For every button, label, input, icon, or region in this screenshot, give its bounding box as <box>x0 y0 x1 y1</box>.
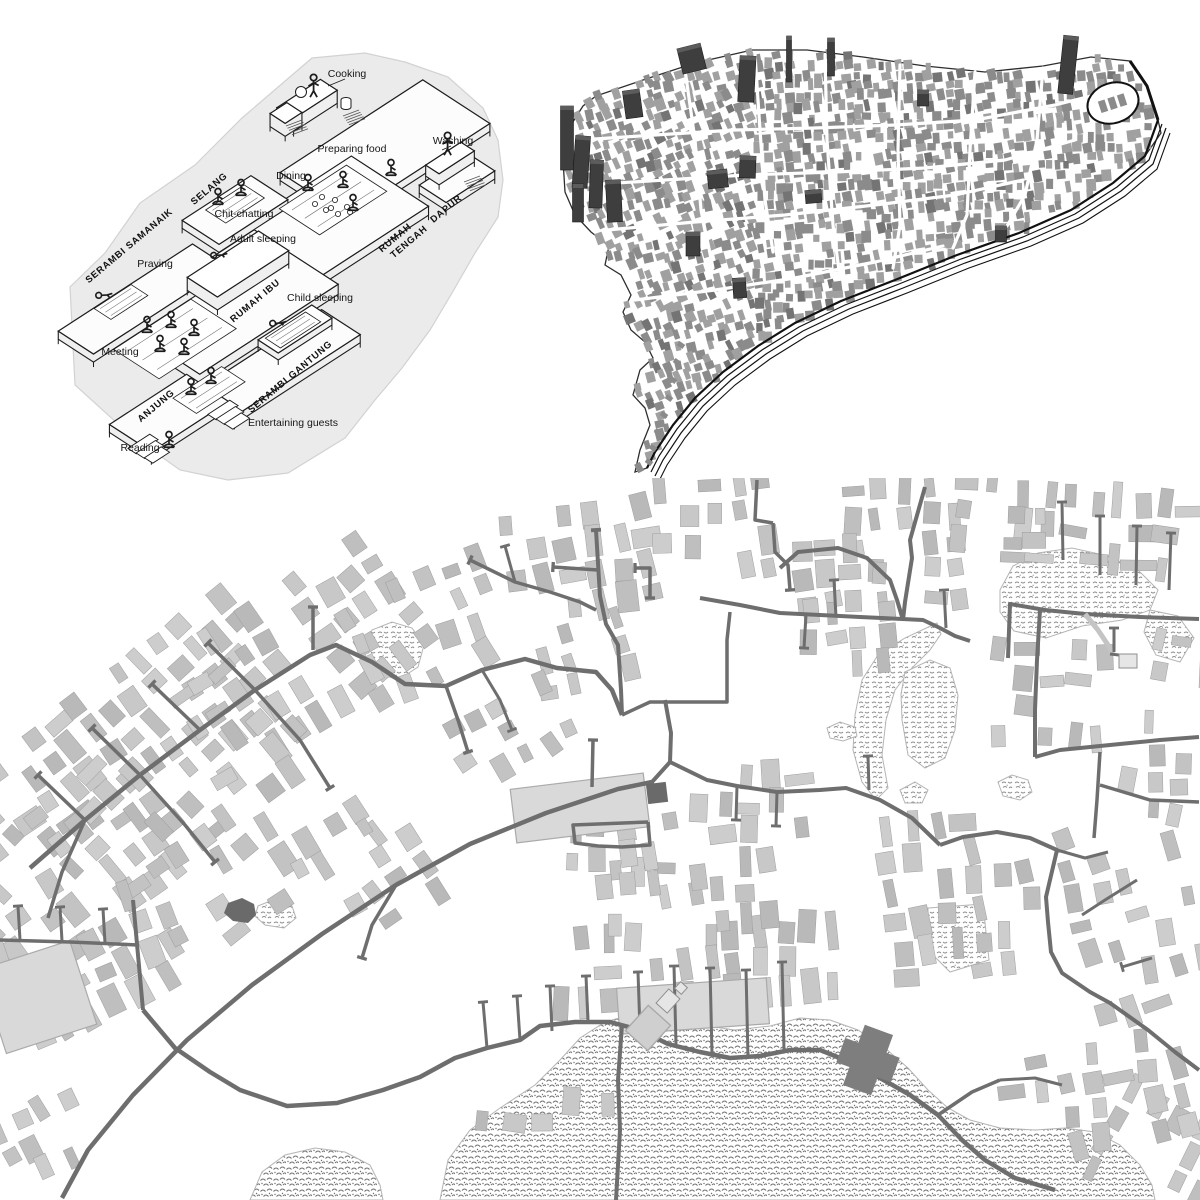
road-path <box>944 590 946 628</box>
activity-label-meeting: Meeting <box>101 346 139 358</box>
small-outline-building <box>1119 654 1137 668</box>
activity-label-entertaining-guests: Entertaining guests <box>248 417 338 429</box>
road-end-cap <box>591 530 601 531</box>
building-cluster <box>686 757 817 846</box>
road-end-cap <box>553 562 554 572</box>
road-end-cap <box>357 957 367 960</box>
dark-annex-building <box>646 782 668 804</box>
cooking-pot-icon <box>296 87 307 98</box>
road-end-cap <box>55 907 65 908</box>
building-cluster <box>497 490 671 633</box>
road-end-cap <box>939 590 949 591</box>
activity-label-preparing-food: Preparing food <box>318 143 387 155</box>
road-end-cap <box>463 751 473 754</box>
road-path <box>710 968 712 1054</box>
activity-label-washing: Washing <box>433 135 474 147</box>
road-path <box>736 786 737 820</box>
building-cluster <box>1115 741 1194 828</box>
road-path <box>483 1002 487 1048</box>
road-path <box>1062 502 1063 560</box>
road-path <box>1094 752 1100 838</box>
road-path <box>652 700 671 782</box>
road-path <box>746 970 748 1058</box>
activity-label-praying: Praying <box>137 258 173 270</box>
road-path <box>446 686 468 752</box>
building-cluster <box>145 520 447 796</box>
road-path <box>804 615 806 648</box>
building-cluster <box>1045 800 1200 1035</box>
road-path <box>1136 526 1137 585</box>
road-path <box>60 907 62 941</box>
road-path <box>550 986 552 1031</box>
road-path <box>1169 533 1171 590</box>
activity-label-reading: Reading <box>120 442 159 454</box>
road-end-cap <box>1121 962 1124 972</box>
road-path <box>782 962 784 1050</box>
activity-label-dining: Dining <box>276 170 306 182</box>
building-cluster <box>436 667 584 800</box>
road-path <box>1000 1078 1062 1085</box>
road-path <box>517 996 520 1040</box>
road-end-cap <box>98 909 108 910</box>
road-path <box>622 612 730 715</box>
activity-label-child-sleeping: Child sleeping <box>287 292 353 304</box>
road-path <box>834 580 836 617</box>
malay-house-activity-diagram: CookingWashingPreparing foodDiningChit-c… <box>20 0 545 500</box>
building-cluster <box>949 478 1049 557</box>
road-path <box>776 792 777 826</box>
road-end-cap <box>500 545 510 548</box>
road-path <box>1035 737 1199 757</box>
road-end-cap <box>13 906 23 907</box>
water-bucket-icon <box>341 98 351 110</box>
road-path <box>592 740 593 787</box>
road-end-cap <box>478 1002 488 1003</box>
building-cluster <box>987 636 1115 754</box>
road-end-cap <box>512 996 522 997</box>
road-path <box>103 909 105 943</box>
road-end-cap <box>799 648 809 649</box>
activity-label-cooking: Cooking <box>328 68 367 80</box>
settlement-figure-ground-map <box>0 478 1200 1200</box>
road-path <box>18 906 20 940</box>
road-path <box>868 756 869 790</box>
building-cluster <box>0 1080 105 1196</box>
urban-architecture-collage: CookingWashingPreparing foodDiningChit-c… <box>0 0 1200 1200</box>
road-end-cap <box>829 580 839 581</box>
dark-blob-building <box>224 898 256 923</box>
building-cluster <box>646 478 781 588</box>
axonometric-kampung-map <box>550 15 1200 480</box>
activity-label-chit-chatting: Chit-chatting <box>215 208 274 220</box>
road-path <box>586 976 588 1022</box>
road-end-cap <box>785 590 795 591</box>
road-path <box>938 1080 1000 1115</box>
activity-label-adult-sleeping: Adult sleeping <box>230 233 296 245</box>
